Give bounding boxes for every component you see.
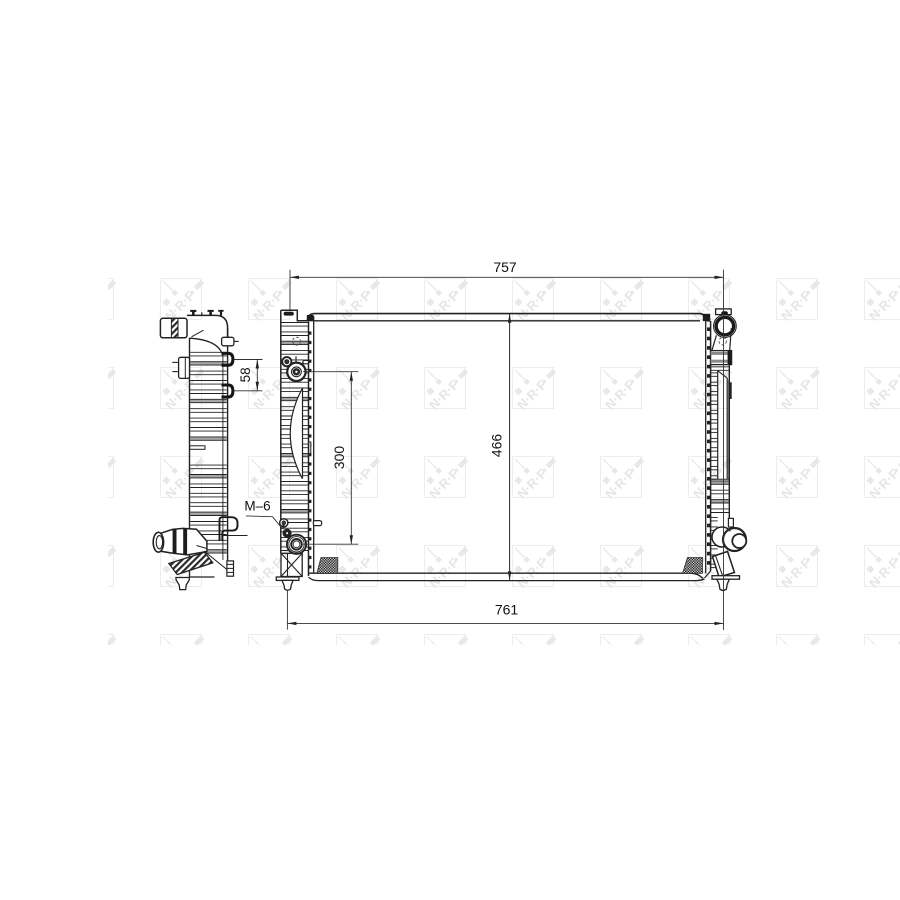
svg-text:757: 757 <box>493 259 517 275</box>
svg-text:58: 58 <box>238 367 253 382</box>
svg-text:466: 466 <box>489 434 505 458</box>
svg-text:300: 300 <box>331 446 347 470</box>
svg-text:761: 761 <box>495 602 519 618</box>
svg-text:M–6: M–6 <box>244 499 270 514</box>
